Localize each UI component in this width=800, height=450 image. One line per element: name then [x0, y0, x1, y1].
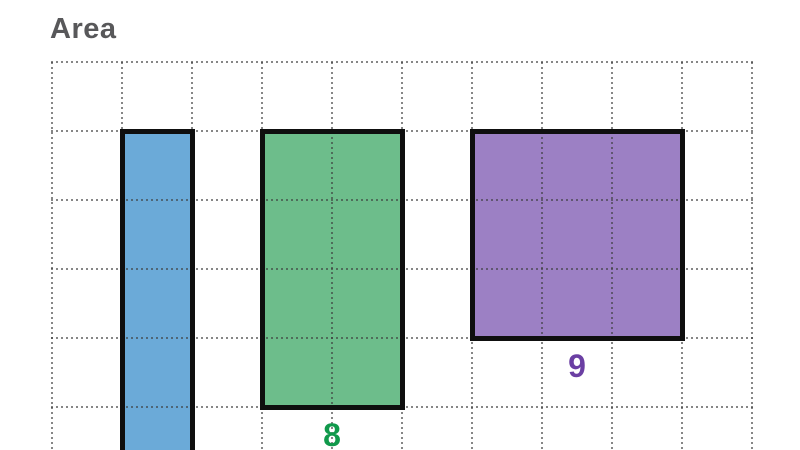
purple-rectangle-outline [470, 129, 685, 341]
purple-rectangle-area-label: 9 [568, 350, 586, 382]
grid-line-vertical [51, 62, 53, 450]
grid-line-horizontal [51, 61, 753, 63]
blue-rectangle-outline [120, 129, 195, 450]
green-rectangle-outline [260, 129, 405, 410]
area-diagram: Area 89 [0, 0, 800, 450]
page-title: Area [50, 13, 117, 46]
grid-line-vertical [751, 62, 753, 450]
green-rectangle-area-label: 8 [323, 419, 341, 450]
dotted-grid: 89 [52, 62, 752, 450]
